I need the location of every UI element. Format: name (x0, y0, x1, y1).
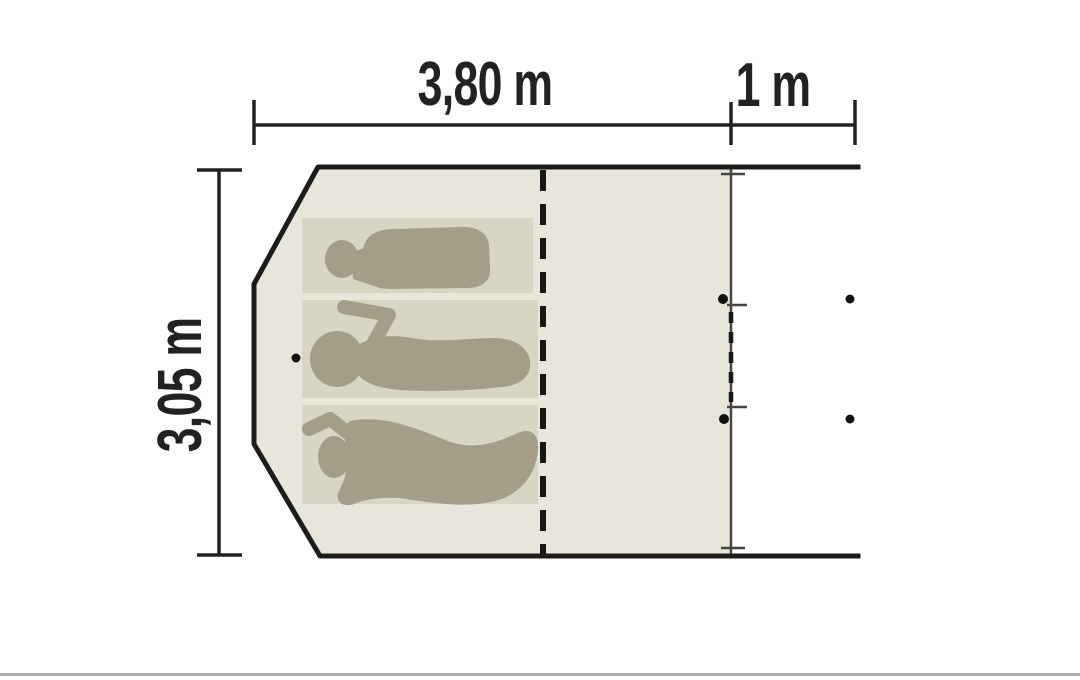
pole-dot-porch-upper (846, 295, 855, 304)
depth-dimension-label: 3,05 m (150, 318, 212, 453)
width-dimension-label: 3,80 m (418, 54, 553, 116)
pole-dot-front-upper (718, 294, 728, 304)
pole-dot-front-lower (719, 414, 729, 424)
pole-dot-porch-lower (846, 415, 855, 424)
pole-dot-left (292, 354, 301, 363)
porch-dimension-label: 1 m (736, 55, 811, 117)
bottom-divider (0, 673, 1080, 676)
tent-floor-plan-diagram: 3,80 m 1 m 3,05 m (0, 0, 1080, 680)
